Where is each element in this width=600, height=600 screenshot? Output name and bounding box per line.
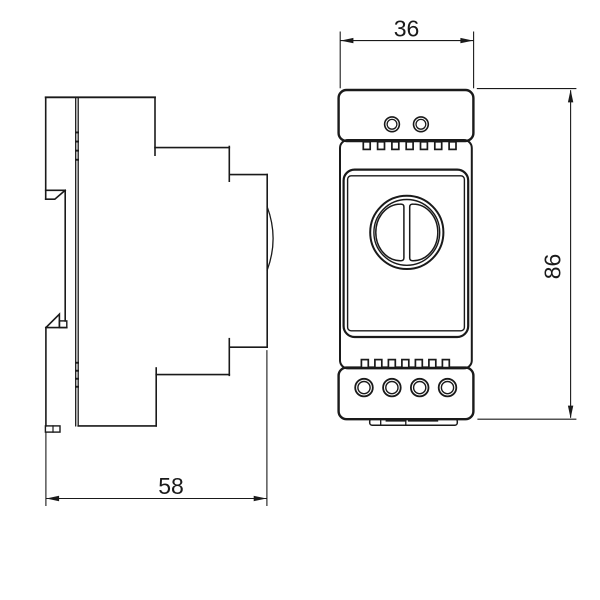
vent-slot — [415, 360, 422, 368]
terminal-screw-inner — [358, 382, 370, 394]
top-hole-left-inner — [387, 119, 397, 129]
vent-slot — [378, 142, 385, 150]
rotary-knob — [370, 196, 443, 269]
technical-drawing: 36 86 58 — [0, 0, 600, 600]
arrowhead-left — [46, 496, 59, 501]
vent-slot — [363, 142, 370, 150]
vent-slot — [429, 360, 436, 368]
vent-slot — [449, 142, 456, 150]
arrowhead-down — [568, 406, 573, 419]
drawing-canvas: 36 86 58 — [0, 0, 600, 600]
dimension-width-36: 36 — [340, 16, 473, 89]
vent-slot — [388, 360, 395, 368]
top-hole-right-inner — [416, 119, 426, 129]
vent-slot — [406, 142, 413, 150]
arrowhead-right — [254, 496, 267, 501]
front-body-top-section — [339, 90, 474, 141]
upper-vent-slots — [363, 142, 456, 150]
terminal-screw-inner — [386, 382, 398, 394]
arrowhead-left — [341, 38, 354, 43]
vent-slot — [361, 360, 368, 368]
vent-slot — [435, 142, 442, 150]
din-clip-block — [59, 321, 66, 328]
dimension-width-label: 36 — [394, 16, 420, 42]
front-panel-outer — [344, 170, 469, 337]
terminal-screw-inner — [441, 382, 453, 394]
dimension-depth-label: 58 — [158, 473, 184, 499]
dimension-height-86: 86 — [477, 89, 577, 420]
vent-slot — [442, 360, 449, 368]
arrowhead-right — [460, 38, 473, 43]
front-view — [339, 90, 474, 425]
side-view — [45, 97, 273, 432]
front-body-mid-section — [340, 140, 472, 368]
terminal-screw-inner — [414, 382, 426, 394]
terminal-screws — [355, 379, 456, 397]
top-screw-holes — [385, 117, 429, 132]
din-rail-notch — [46, 190, 65, 199]
vent-slot — [392, 142, 399, 150]
dimension-height-label: 86 — [540, 254, 566, 280]
vent-slot — [421, 142, 428, 150]
vent-slot — [375, 360, 382, 368]
lower-vent-slots — [361, 360, 449, 368]
knob-bulge-arc — [267, 207, 273, 270]
arrowhead-up — [568, 90, 573, 103]
vent-slot — [402, 360, 409, 368]
